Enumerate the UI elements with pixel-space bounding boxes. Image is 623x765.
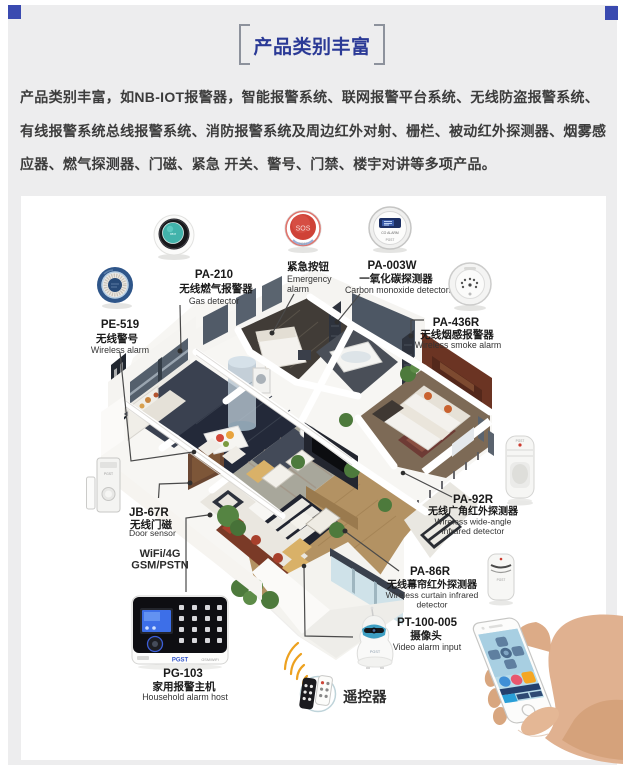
svg-text:PGST: PGST [386, 238, 395, 242]
svg-text:PG-103: PG-103 [163, 668, 203, 680]
svg-text:Video alarm input: Video alarm input [393, 642, 462, 652]
svg-text:GSM/PSTN: GSM/PSTN [131, 560, 189, 572]
svg-text:alarm: alarm [287, 284, 309, 294]
svg-text:PA-92R: PA-92R [453, 494, 494, 506]
svg-text:Carbon monoxide detectors: Carbon monoxide detectors [345, 285, 454, 295]
svg-text:Gas detector: Gas detector [189, 296, 239, 306]
svg-text:Door sensor: Door sensor [129, 528, 176, 538]
svg-text:Wireless wide-angle: Wireless wide-angle [435, 517, 512, 527]
svg-text:CO ALARM: CO ALARM [381, 231, 399, 235]
svg-text:PGST: PGST [299, 242, 308, 246]
svg-text:PA-210: PA-210 [195, 269, 233, 281]
svg-text:Wireless curtain infrared: Wireless curtain infrared [386, 590, 479, 600]
svg-text:GSM/WiFi: GSM/WiFi [201, 658, 218, 662]
svg-text:无线警号: 无线警号 [95, 332, 138, 345]
svg-text:PGST: PGST [497, 578, 506, 582]
svg-text:遥控器: 遥控器 [343, 688, 387, 706]
svg-text:detector: detector [416, 600, 447, 610]
svg-text:PA-003W: PA-003W [368, 260, 417, 272]
svg-text:Wireless smoke alarm: Wireless smoke alarm [415, 340, 502, 350]
svg-text:PE-519: PE-519 [101, 319, 139, 331]
svg-text:PGST: PGST [104, 472, 113, 476]
svg-text:88:8: 88:8 [170, 232, 176, 236]
svg-text:紧急按钮: 紧急按钮 [287, 260, 329, 273]
svg-text:PGST: PGST [516, 439, 525, 443]
svg-text:一氧化碳探测器: 一氧化碳探测器 [359, 272, 433, 285]
svg-text:JB-67R: JB-67R [129, 507, 169, 519]
svg-text:PA-86R: PA-86R [410, 566, 451, 578]
svg-text:SOS: SOS [296, 226, 311, 233]
svg-text:PGST: PGST [370, 650, 381, 654]
svg-text:infrared detector: infrared detector [442, 526, 505, 536]
svg-text:摄像头: 摄像头 [410, 629, 442, 642]
svg-text:Wireless alarm: Wireless alarm [91, 345, 149, 355]
svg-text:WiFi/4G: WiFi/4G [140, 548, 181, 560]
svg-text:PGST: PGST [172, 658, 189, 664]
svg-text:PA-436R: PA-436R [433, 317, 480, 329]
svg-text:PT-100-005: PT-100-005 [397, 617, 458, 629]
svg-text:无线燃气报警器: 无线燃气报警器 [178, 282, 253, 295]
svg-text:Emergency: Emergency [287, 274, 332, 284]
svg-text:Household alarm host: Household alarm host [142, 692, 228, 702]
